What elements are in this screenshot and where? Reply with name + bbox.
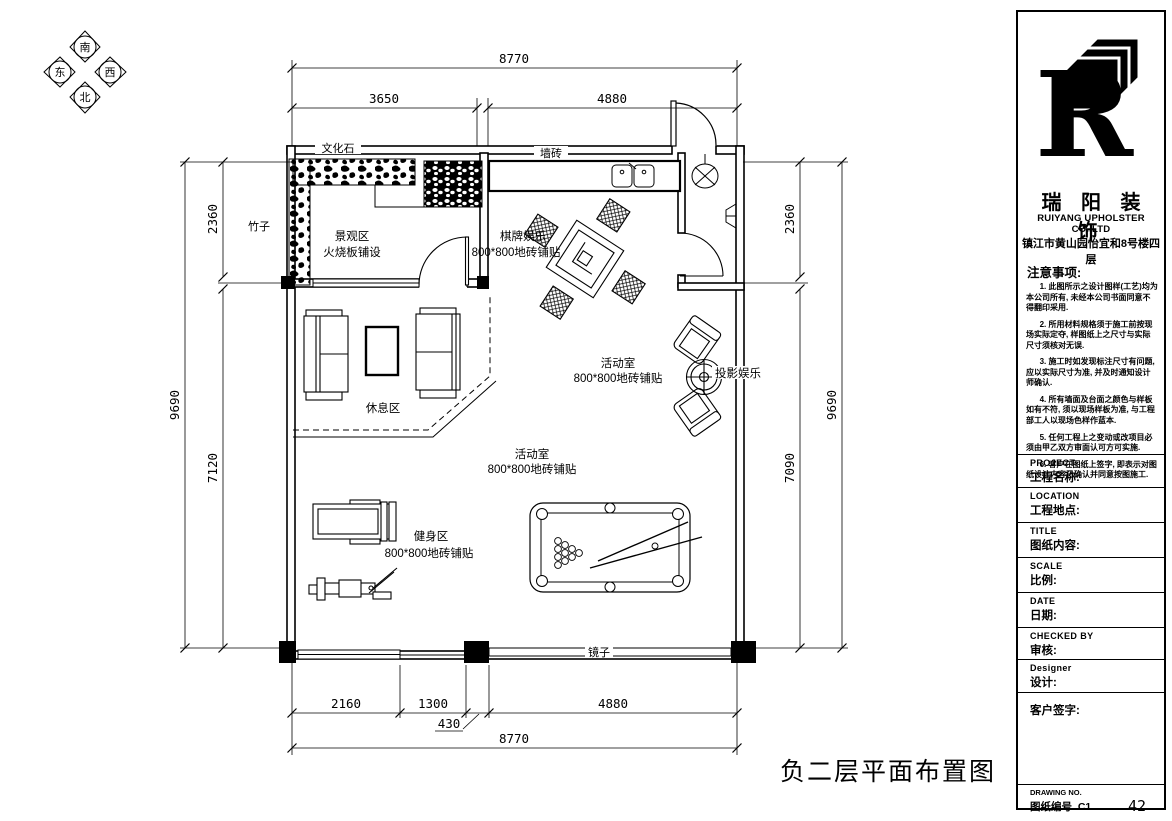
label-wall-tile: 墙砖 (540, 146, 562, 160)
rest-area-group (293, 296, 496, 437)
corridor-door (680, 233, 723, 276)
label-activity-tile-1: 800*800地砖铺贴 (574, 371, 663, 385)
dim-bottom-4: 4880 (598, 696, 628, 711)
dim-left-lower: 7120 (205, 453, 220, 483)
bamboo-strip (289, 159, 310, 285)
mahjong-stool (496, 170, 673, 347)
dim-top-total: 8770 (499, 51, 529, 66)
cultural-stone-band (293, 159, 415, 185)
compass-north: 北 (80, 91, 91, 104)
dim-top-right: 4880 (597, 91, 627, 106)
pebble-patch (424, 161, 482, 207)
armchair (672, 315, 722, 366)
field-designer: Designer 设计: (1018, 659, 1164, 692)
company-name-en: RUIYANG UPHOLSTER CO.,LTD (1018, 213, 1164, 235)
dim-right-total: 9690 (824, 390, 839, 420)
field-scale: SCALE 比例: (1018, 557, 1164, 592)
compass-rose: 南 北 东 西 (44, 31, 126, 113)
wall-lamp-icon (726, 204, 736, 228)
label-fitness-area: 健身区 (414, 529, 449, 543)
landscape-window (313, 279, 419, 287)
plan-title: 负二层平面布置图 (780, 758, 996, 786)
field-client-signature: 客户签字: (1018, 692, 1164, 784)
label-cultural-stone: 文化石 (322, 141, 355, 155)
compass-east: 东 (55, 66, 66, 79)
drawing-sheet: 南 北 东 西 (0, 0, 1172, 821)
label-activity-room-2: 活动室 (515, 447, 550, 461)
note-item: 5. 任何工程上之变动或改项目必须由甲乙双方审面认可方可实施. (1026, 433, 1158, 454)
company-logo: R (1033, 28, 1149, 178)
title-block-panel: R 瑞 阳 装 饰 RUIYANG UPHOLSTER CO.,LTD 镇江市黄… (1016, 10, 1166, 810)
exhaust-fan-icon (692, 154, 718, 188)
sink-right (634, 165, 654, 187)
compass-west: 西 (105, 67, 116, 79)
field-date: DATE 日期: (1018, 592, 1164, 627)
dim-bottom-3: 430 (438, 716, 461, 731)
dim-bottom-2: 1300 (418, 696, 448, 711)
field-project: PROJECT 工程名称: (1018, 454, 1164, 487)
label-projection: 投影娱乐 (715, 366, 761, 380)
note-item: 4. 所有墙面及台面之颜色与样板如有不符, 须以现场样板为准, 与工程部工人以现… (1026, 395, 1158, 427)
label-landscape-area: 景观区 (335, 230, 370, 243)
floor-plan-canvas: 南 北 东 西 (0, 0, 1016, 821)
sofa-right (416, 308, 460, 398)
sofa-left (304, 310, 348, 400)
label-bamboo: 竹子 (248, 219, 270, 233)
svg-text:R: R (1035, 45, 1134, 178)
cue-ball (652, 543, 658, 549)
treadmill (313, 500, 396, 544)
label-rest-area: 休息区 (366, 401, 401, 415)
note-item: 2. 所用材料规格须于施工前按现场实际定夺, 样图纸上之尺寸与实际尺寸须核对无误… (1026, 320, 1158, 352)
label-mirror: 镜子 (588, 645, 610, 659)
field-location: LOCATION 工程地点: (1018, 487, 1164, 522)
drawing-no-en: DRAWING NO. (1030, 788, 1164, 797)
field-title: TITLE 图纸内容: (1018, 522, 1164, 557)
dim-top-left: 3650 (369, 91, 399, 106)
page-number: 42 (1128, 797, 1146, 815)
mahjong-table-group (496, 170, 673, 347)
dim-left-total: 9690 (167, 390, 182, 420)
coffee-table (366, 327, 398, 375)
dim-right-lower: 7090 (782, 453, 797, 483)
compass-south: 南 (80, 41, 91, 54)
sink-left (612, 165, 632, 187)
armchair (672, 387, 722, 438)
drawing-number-row: DRAWING NO. 图纸编号 C1 42 (1018, 784, 1164, 808)
notes-title: 注意事项: (1027, 262, 1081, 281)
label-fitness-tile: 800*800地砖铺贴 (385, 546, 474, 560)
billiard-table (530, 503, 702, 592)
exercise-machine (309, 568, 397, 600)
field-checked-by: CHECKED BY 审核: (1018, 627, 1164, 659)
dim-left-upper: 2360 (205, 204, 220, 234)
label-landscape-floor: 火烧板铺设 (323, 245, 381, 259)
note-item: 3. 施工时如发现标注尺寸有问题, 应以实际尺寸为准, 并及时通知设计师确认. (1026, 357, 1158, 389)
label-activity-tile-2: 800*800地砖铺贴 (488, 462, 577, 476)
note-item: 1. 此图所示之设计图样(工艺)均为本公司所有, 未经本公司书面同意不得翻印采用… (1026, 282, 1158, 314)
label-activity-room-1: 活动室 (601, 356, 636, 370)
dim-right-upper: 2360 (782, 204, 797, 234)
label-chess-area: 棋牌娱乐 (500, 229, 546, 243)
drawing-no-value: C1 (1078, 801, 1091, 813)
label-chess-tile: 800*800地砖铺贴 (472, 245, 561, 259)
landscape-hatches (289, 159, 482, 285)
dim-bottom-1: 2160 (331, 696, 361, 711)
dim-bottom-total: 8770 (499, 731, 529, 746)
bar-counter (489, 161, 680, 191)
